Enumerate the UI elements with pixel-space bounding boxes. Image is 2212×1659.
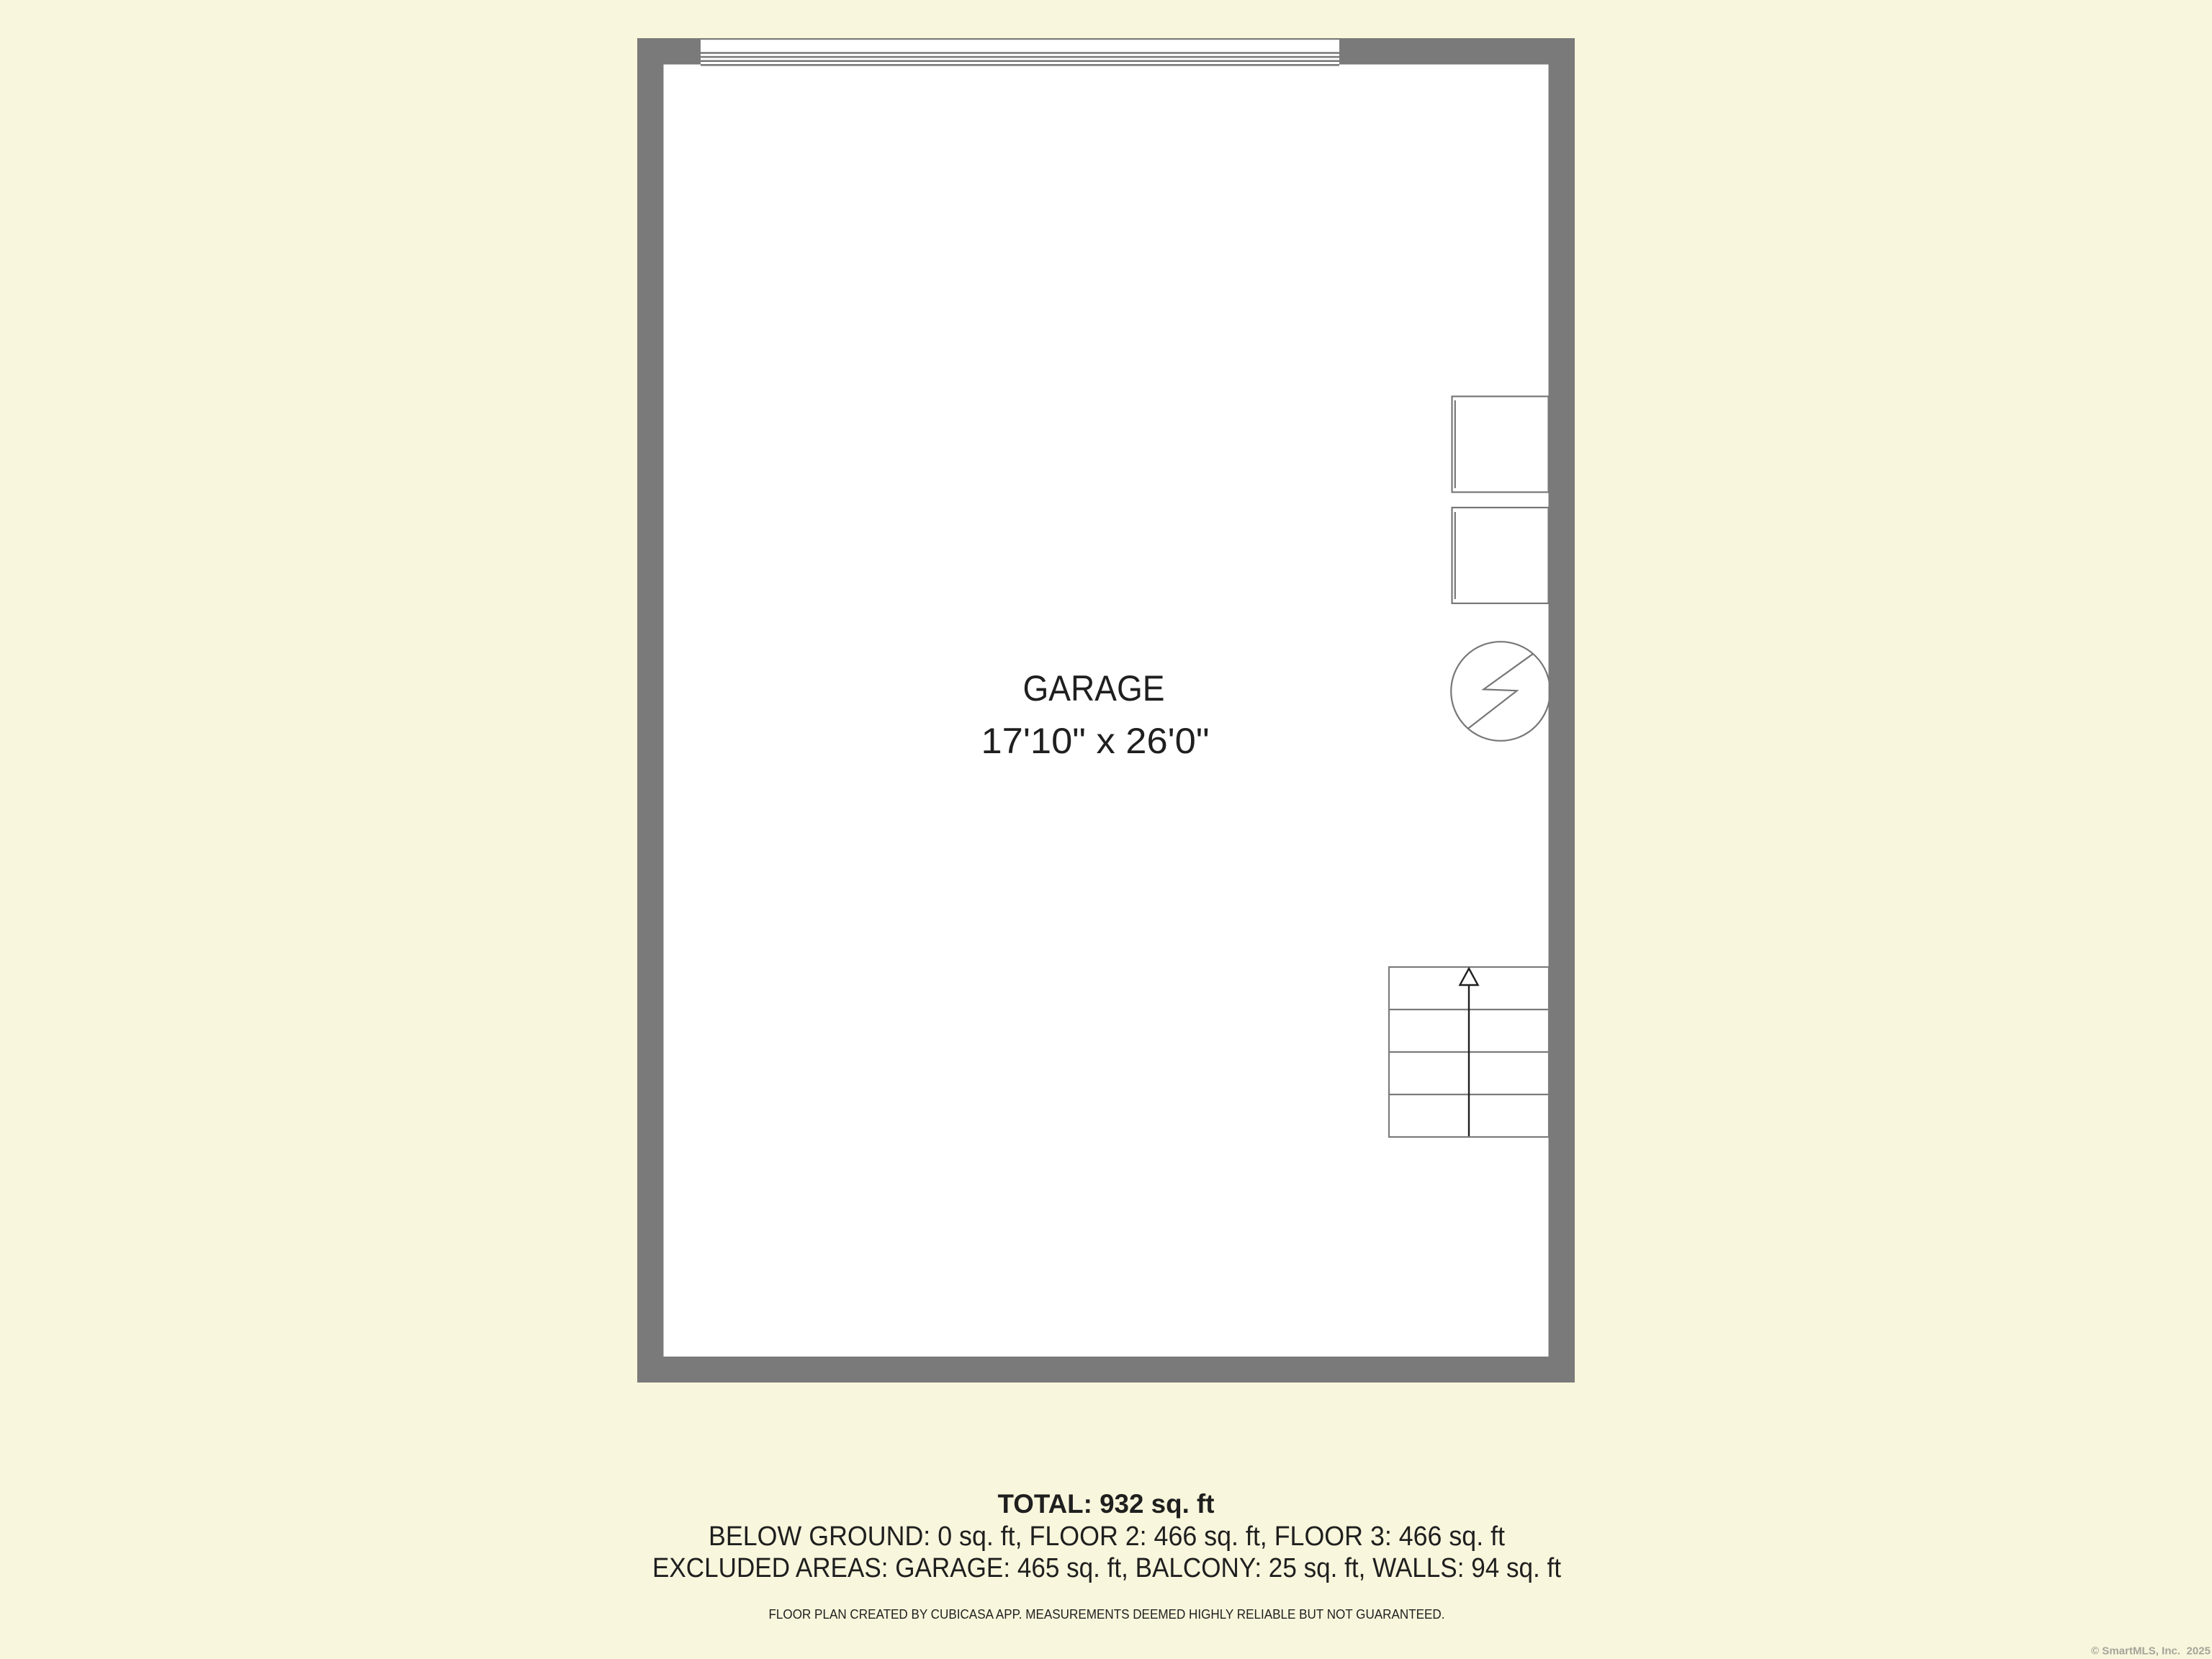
- svg-text:EXCLUDED AREAS: GARAGE: 465 sq: EXCLUDED AREAS: GARAGE: 465 sq. ft, BALC…: [652, 1553, 1561, 1583]
- svg-text:BELOW GROUND: 0 sq. ft, FLOOR: BELOW GROUND: 0 sq. ft, FLOOR 2: 466 sq.…: [709, 1521, 1505, 1552]
- svg-text:GARAGE: GARAGE: [1023, 667, 1165, 709]
- svg-text:17'10" x 26'0": 17'10" x 26'0": [981, 720, 1210, 761]
- svg-text:© SmartMLS, Inc. 2025: © SmartMLS, Inc. 2025: [2091, 1645, 2211, 1658]
- svg-text:FLOOR PLAN CREATED BY CUBICASA: FLOOR PLAN CREATED BY CUBICASA APP. MEAS…: [769, 1607, 1445, 1622]
- svg-text:TOTAL: 932 sq. ft: TOTAL: 932 sq. ft: [998, 1488, 1215, 1519]
